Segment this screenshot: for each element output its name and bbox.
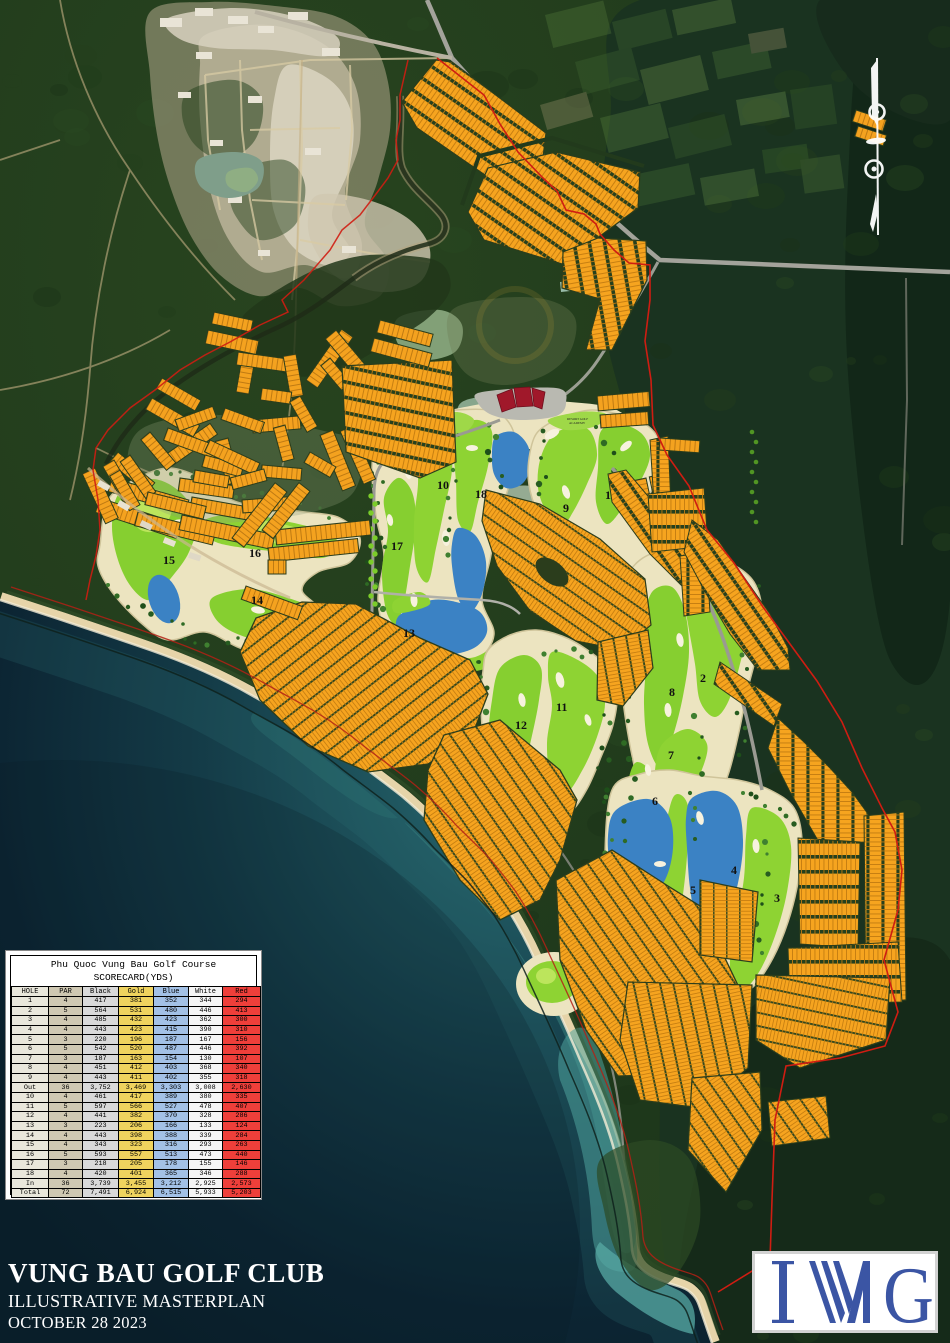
svg-text:6: 6	[652, 794, 658, 808]
svg-text:G: G	[883, 1254, 934, 1330]
svg-text:13: 13	[403, 626, 415, 640]
svg-text:8: 8	[669, 685, 675, 699]
svg-text:14: 14	[251, 593, 263, 607]
svg-text:7: 7	[668, 748, 674, 762]
svg-text:9: 9	[563, 501, 569, 515]
svg-text:15: 15	[163, 553, 175, 567]
svg-text:1: 1	[605, 488, 611, 502]
svg-text:16: 16	[249, 546, 261, 560]
svg-text:18: 18	[475, 487, 487, 501]
svg-text:2: 2	[700, 671, 706, 685]
svg-text:17: 17	[391, 539, 403, 553]
svg-text:3: 3	[774, 891, 780, 905]
svg-text:12: 12	[515, 718, 527, 732]
svg-text:5: 5	[690, 883, 696, 897]
svg-text:11: 11	[556, 700, 567, 714]
svg-text:ACADEMY: ACADEMY	[569, 421, 586, 425]
svg-text:4: 4	[731, 863, 737, 877]
svg-text:10: 10	[437, 478, 449, 492]
